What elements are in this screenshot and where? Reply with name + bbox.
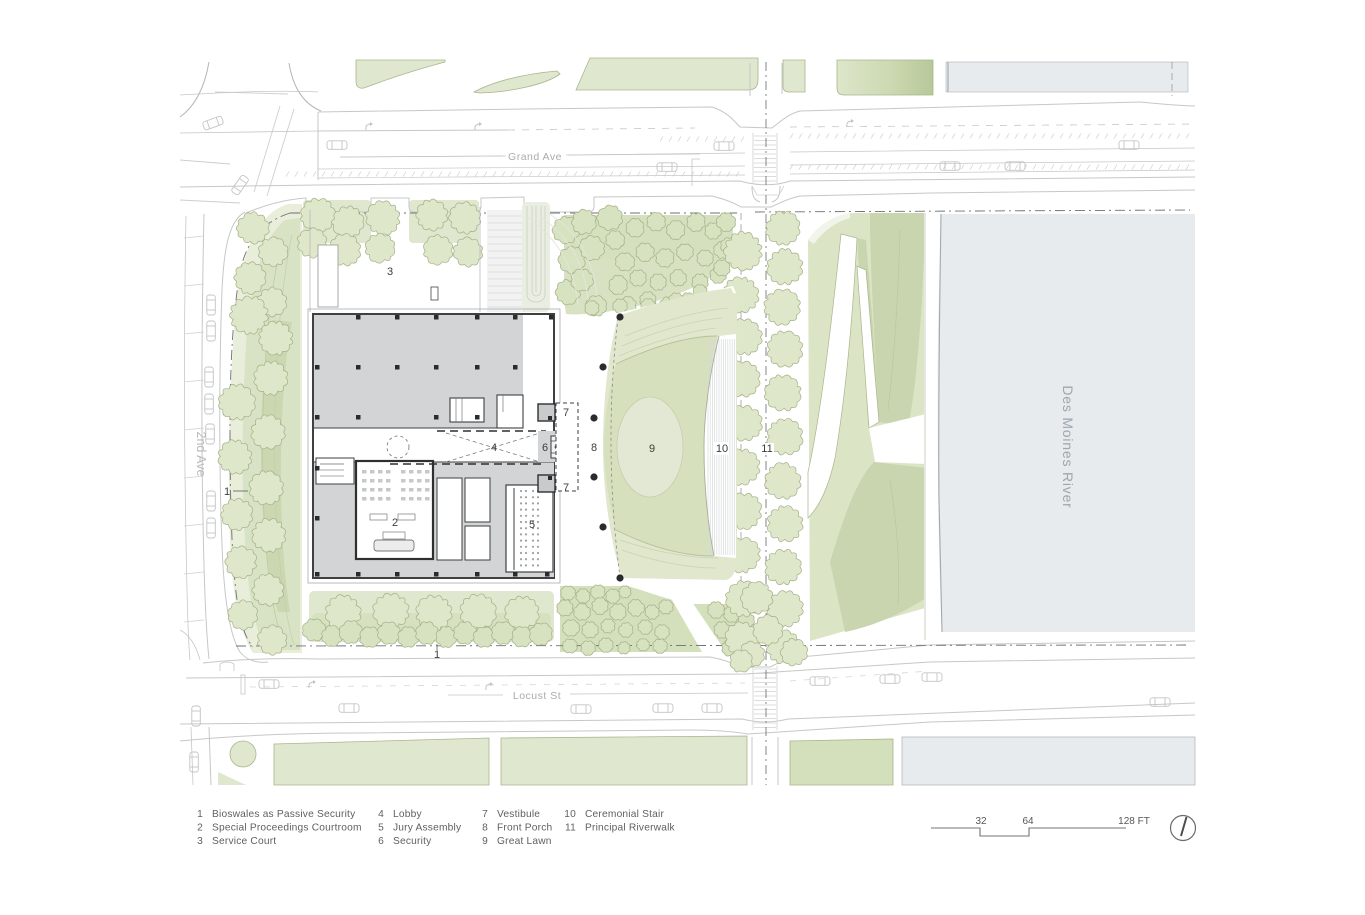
svg-text:Ceremonial Stair: Ceremonial Stair [585,809,664,820]
svg-text:Des Moines River: Des Moines River [1060,385,1076,508]
svg-text:1: 1 [434,649,440,661]
svg-text:2: 2 [392,517,398,529]
svg-text:3: 3 [387,266,393,278]
svg-text:2nd Ave: 2nd Ave [194,432,208,477]
svg-text:6: 6 [542,442,548,454]
svg-text:10: 10 [564,809,576,820]
svg-text:6: 6 [378,836,384,847]
svg-text:3: 3 [197,836,203,847]
svg-text:Front Porch: Front Porch [497,823,552,834]
svg-text:64: 64 [1022,816,1034,827]
svg-text:Bioswales as Passive Security: Bioswales as Passive Security [212,809,356,820]
svg-text:2: 2 [197,823,203,834]
svg-text:Principal Riverwalk: Principal Riverwalk [585,823,676,834]
svg-text:Lobby: Lobby [393,809,422,820]
svg-text:32: 32 [975,816,987,827]
svg-text:Grand Ave: Grand Ave [508,151,562,163]
svg-text:Vestibule: Vestibule [497,809,540,820]
svg-text:Special Proceedings Courtroom: Special Proceedings Courtroom [212,823,362,834]
svg-text:1: 1 [224,486,230,498]
svg-text:11: 11 [565,823,576,834]
svg-text:7: 7 [563,482,569,494]
svg-text:5: 5 [529,519,535,531]
svg-text:1: 1 [197,809,203,820]
svg-text:Great Lawn: Great Lawn [497,836,552,847]
svg-text:7: 7 [563,407,569,419]
svg-text:11: 11 [761,443,772,455]
svg-text:10: 10 [716,443,728,455]
svg-text:8: 8 [591,442,597,454]
svg-text:Service Court: Service Court [212,836,276,847]
svg-text:128 FT: 128 FT [1118,816,1150,827]
svg-text:Jury Assembly: Jury Assembly [393,823,462,834]
svg-text:4: 4 [491,442,497,454]
svg-text:5: 5 [378,823,384,834]
svg-text:9: 9 [482,836,488,847]
svg-text:8: 8 [482,823,488,834]
svg-text:Security: Security [393,836,432,847]
svg-text:4: 4 [378,809,384,820]
svg-text:9: 9 [649,443,655,455]
svg-text:Locust St: Locust St [513,690,561,702]
svg-text:7: 7 [482,809,488,820]
